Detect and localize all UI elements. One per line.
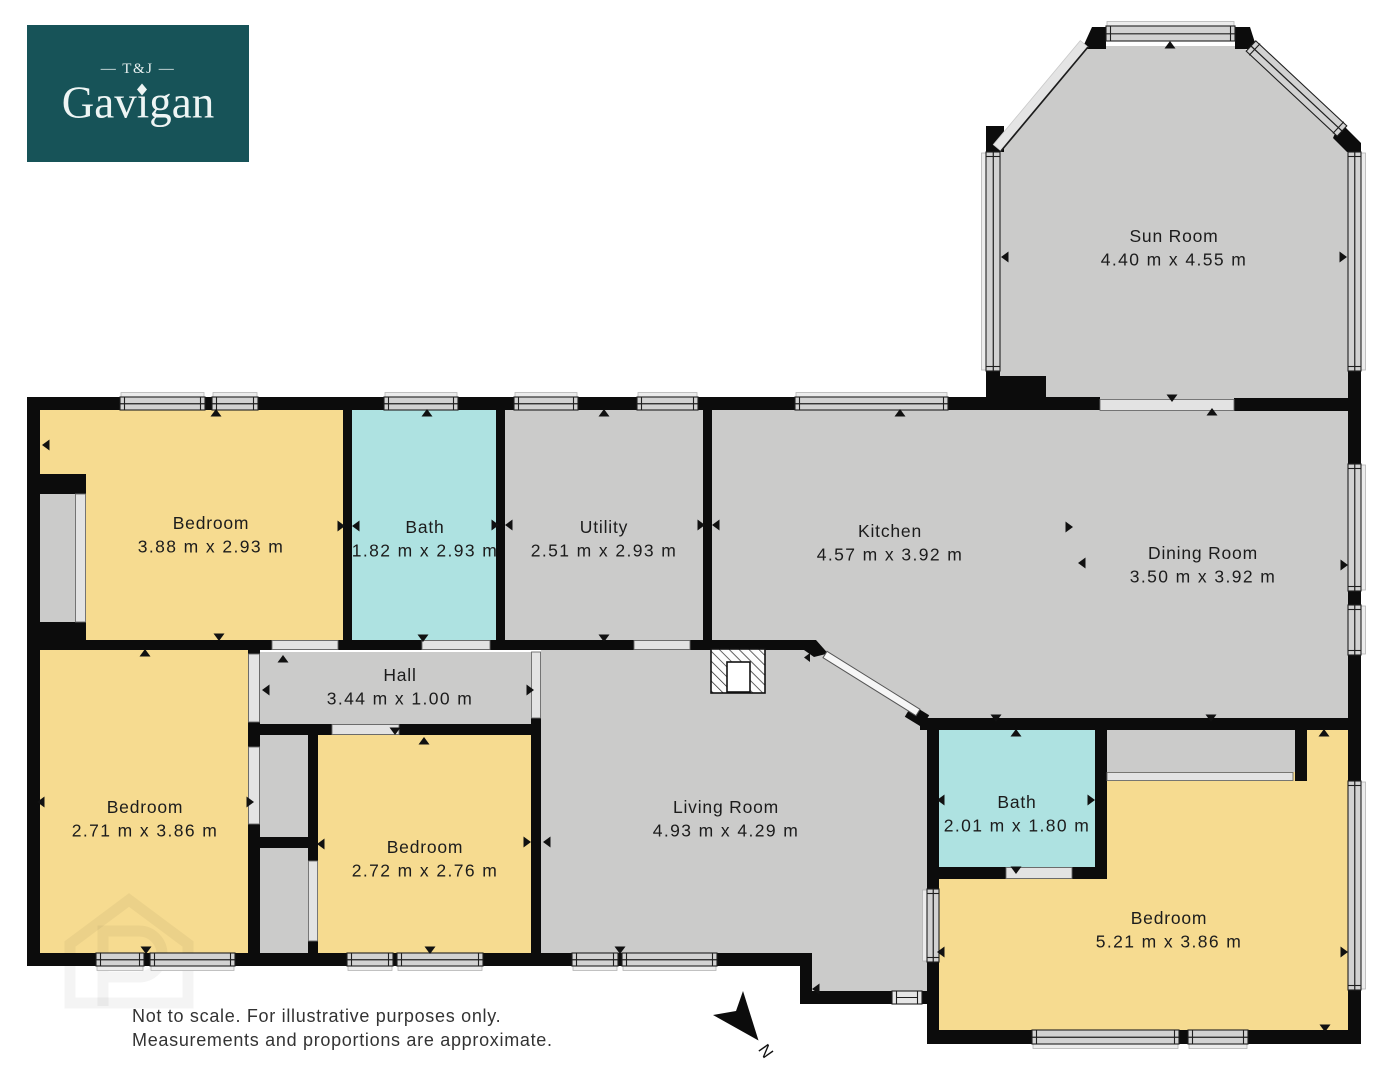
svg-text:4.93 m x 4.29 m: 4.93 m x 4.29 m	[653, 821, 799, 841]
svg-text:4.57 m x 3.92 m: 4.57 m x 3.92 m	[817, 545, 963, 565]
svg-text:2.01 m x 1.80 m: 2.01 m x 1.80 m	[944, 816, 1090, 836]
svg-text:Dining Room: Dining Room	[1148, 543, 1258, 563]
svg-text:— T&J —: — T&J —	[100, 61, 175, 77]
svg-text:Sun Room: Sun Room	[1129, 226, 1218, 246]
svg-text:Bath: Bath	[405, 517, 444, 537]
svg-text:Living Room: Living Room	[673, 797, 779, 817]
svg-text:N: N	[754, 1041, 777, 1062]
svg-text:Bath: Bath	[997, 792, 1036, 812]
svg-text:Measurements and proportions a: Measurements and proportions are approxi…	[132, 1030, 553, 1050]
svg-text:3.50 m x 3.92 m: 3.50 m x 3.92 m	[1130, 567, 1276, 587]
svg-text:Utility: Utility	[580, 517, 628, 537]
svg-text:Hall: Hall	[383, 665, 416, 685]
svg-text:2.51 m x 2.93 m: 2.51 m x 2.93 m	[531, 541, 677, 561]
svg-text:3.88 m x 2.93 m: 3.88 m x 2.93 m	[138, 537, 284, 557]
svg-text:2.71 m x 3.86 m: 2.71 m x 3.86 m	[72, 821, 218, 841]
svg-text:Bedroom: Bedroom	[173, 513, 250, 533]
svg-text:2.72 m x 2.76 m: 2.72 m x 2.76 m	[352, 861, 498, 881]
svg-text:Bedroom: Bedroom	[387, 837, 464, 857]
svg-text:Kitchen: Kitchen	[858, 521, 922, 541]
svg-text:1.82 m x 2.93 m: 1.82 m x 2.93 m	[352, 541, 498, 561]
svg-text:Not to scale. For illustrative: Not to scale. For illustrative purposes …	[132, 1006, 501, 1026]
svg-text:5.21 m x 3.86 m: 5.21 m x 3.86 m	[1096, 932, 1242, 952]
svg-text:Gavigan: Gavigan	[62, 78, 214, 128]
svg-text:4.40 m x 4.55 m: 4.40 m x 4.55 m	[1101, 250, 1247, 270]
svg-text:3.44 m x 1.00 m: 3.44 m x 1.00 m	[327, 689, 473, 709]
svg-text:Bedroom: Bedroom	[107, 797, 184, 817]
svg-text:Bedroom: Bedroom	[1131, 908, 1208, 928]
